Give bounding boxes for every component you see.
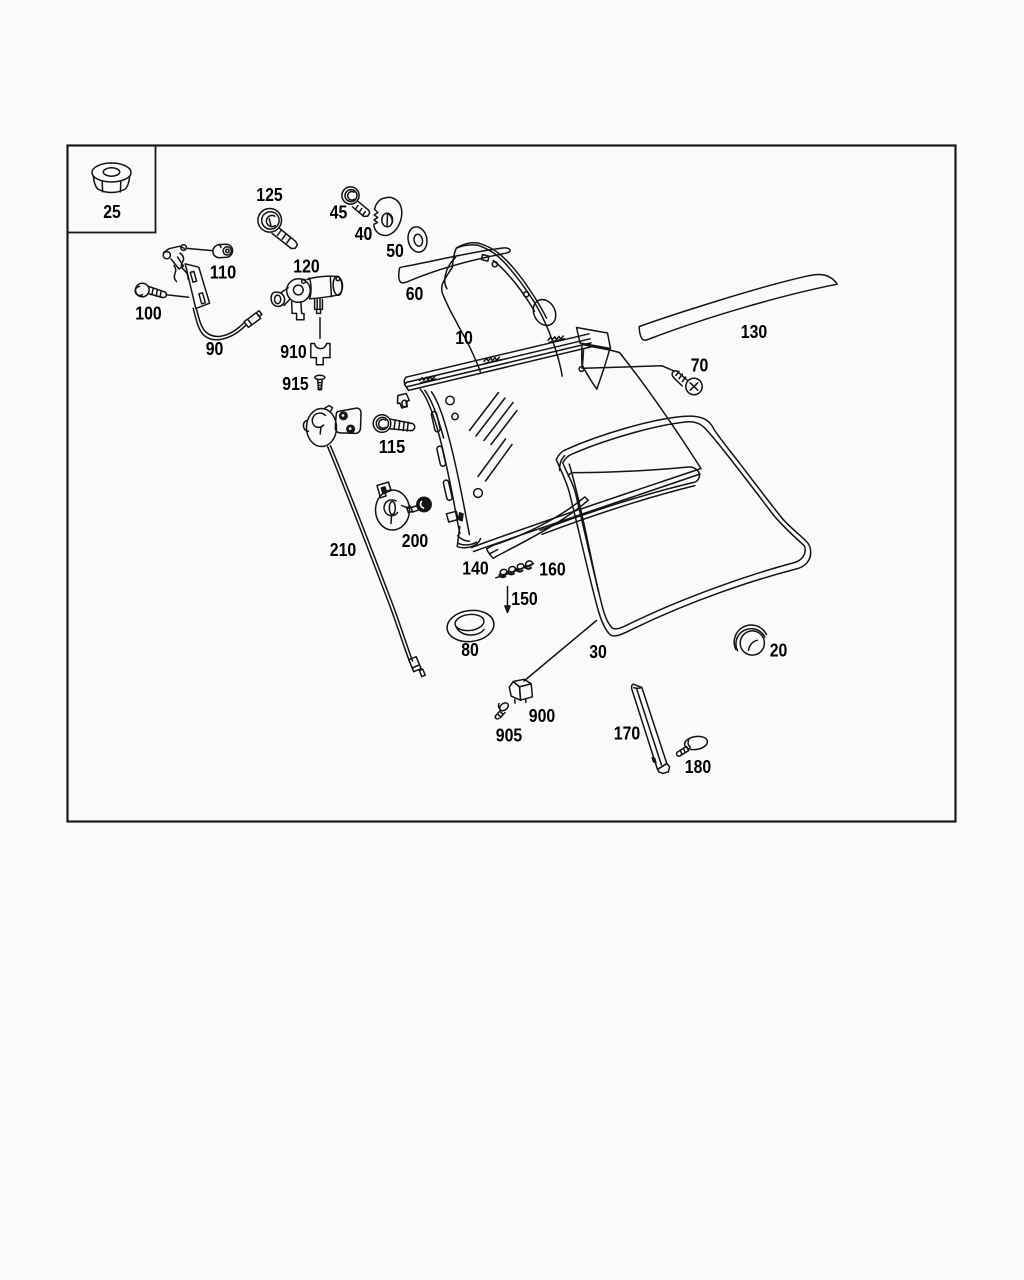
svg-text:910: 910 — [280, 341, 306, 362]
svg-text:150: 150 — [511, 588, 537, 609]
svg-text:110: 110 — [210, 261, 236, 282]
svg-text:70: 70 — [691, 355, 709, 376]
svg-text:160: 160 — [539, 559, 565, 580]
svg-text:10: 10 — [455, 327, 473, 348]
svg-text:915: 915 — [282, 373, 308, 394]
svg-text:100: 100 — [135, 303, 161, 324]
svg-text:900: 900 — [529, 705, 555, 726]
svg-text:80: 80 — [461, 639, 479, 660]
svg-text:25: 25 — [103, 201, 121, 222]
svg-text:115: 115 — [379, 436, 405, 457]
svg-text:120: 120 — [293, 256, 319, 277]
svg-text:125: 125 — [256, 184, 282, 205]
svg-text:90: 90 — [206, 338, 224, 359]
svg-text:60: 60 — [406, 283, 424, 304]
svg-text:140: 140 — [462, 558, 488, 579]
svg-text:20: 20 — [770, 640, 788, 661]
svg-text:130: 130 — [741, 321, 767, 342]
svg-text:45: 45 — [330, 202, 348, 223]
svg-text:30: 30 — [589, 641, 607, 662]
svg-text:210: 210 — [330, 539, 356, 560]
svg-text:200: 200 — [402, 530, 428, 551]
svg-text:40: 40 — [355, 223, 373, 244]
svg-text:50: 50 — [386, 240, 404, 261]
svg-text:180: 180 — [685, 756, 711, 777]
svg-text:905: 905 — [496, 725, 522, 746]
svg-text:170: 170 — [614, 723, 640, 744]
